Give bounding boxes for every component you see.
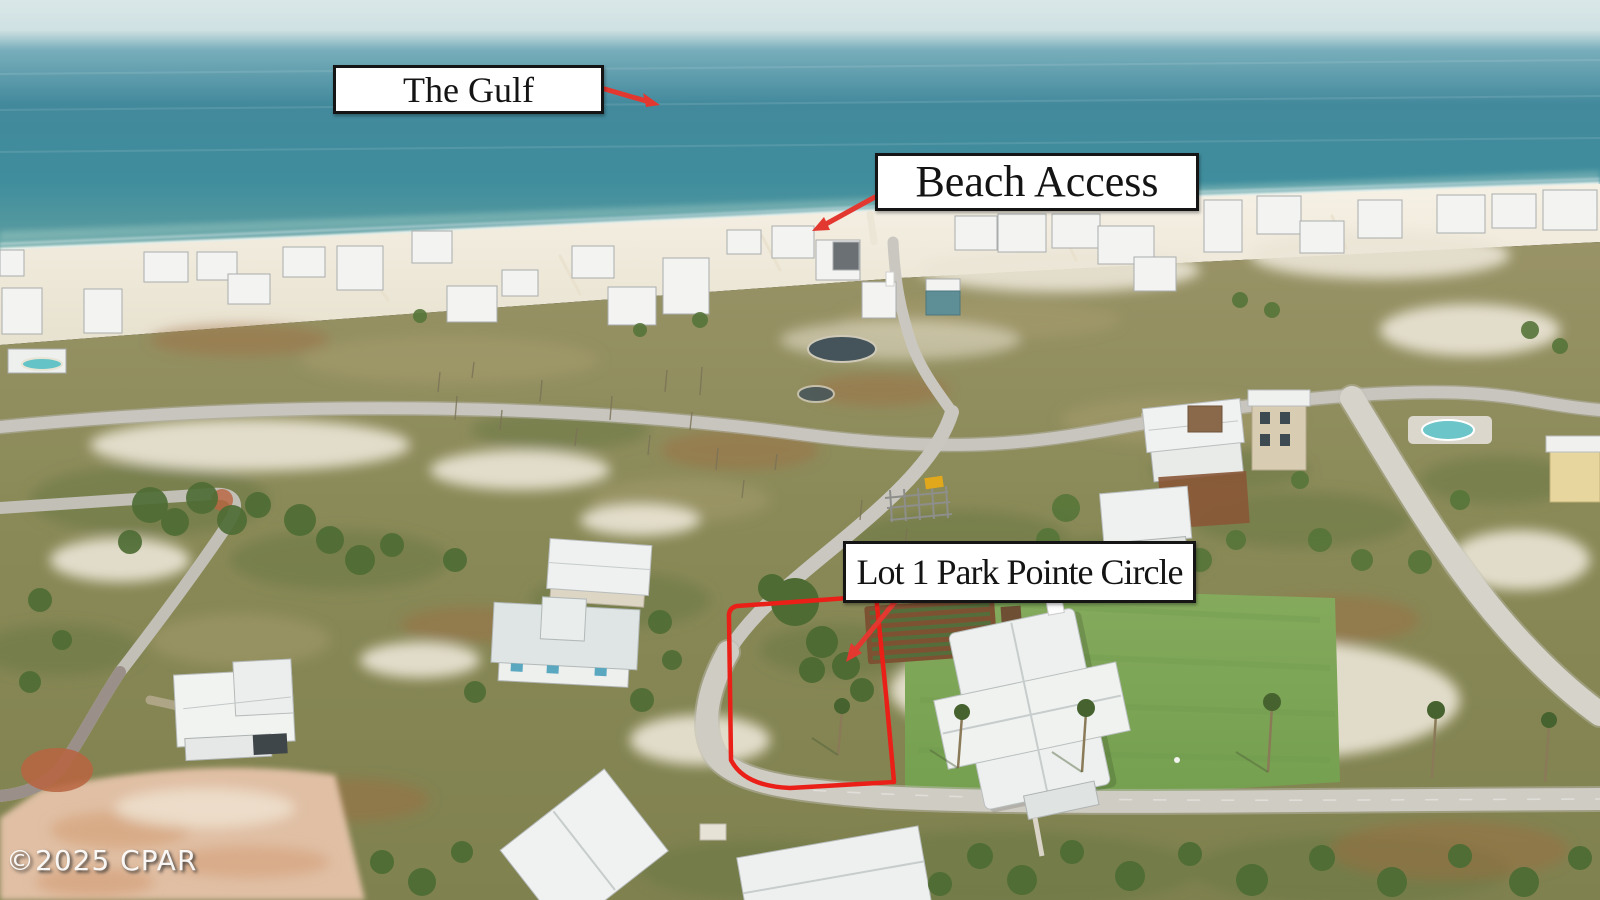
label-lot-text: Lot 1 Park Pointe Circle	[857, 554, 1183, 590]
center-house-lower	[490, 594, 640, 688]
stamped-circle	[21, 748, 93, 792]
label-beach-access-text: Beach Access	[915, 160, 1158, 204]
copyright-watermark: ©2025 CPAR	[6, 844, 197, 877]
teal-house	[926, 279, 960, 315]
cabana-hut	[1188, 406, 1222, 432]
small-deck	[700, 824, 726, 840]
tan-tower-house	[1248, 390, 1310, 470]
pool-right	[1408, 416, 1492, 444]
dark-gray-house	[833, 242, 859, 270]
center-house-upper	[546, 539, 652, 608]
label-the-gulf-text: The Gulf	[403, 72, 534, 108]
label-the-gulf: The Gulf	[333, 65, 604, 114]
aerial-photo	[0, 0, 1600, 900]
yellow-house	[1546, 436, 1600, 502]
label-lot-1-park-pointe-circle: Lot 1 Park Pointe Circle	[843, 541, 1196, 603]
label-beach-access: Beach Access	[875, 153, 1199, 211]
left-house	[173, 659, 296, 761]
pool-house-left	[8, 349, 66, 373]
listing-photo-stage: The Gulf Beach Access Lot 1 Park Pointe …	[0, 0, 1600, 900]
white-car	[886, 272, 894, 286]
